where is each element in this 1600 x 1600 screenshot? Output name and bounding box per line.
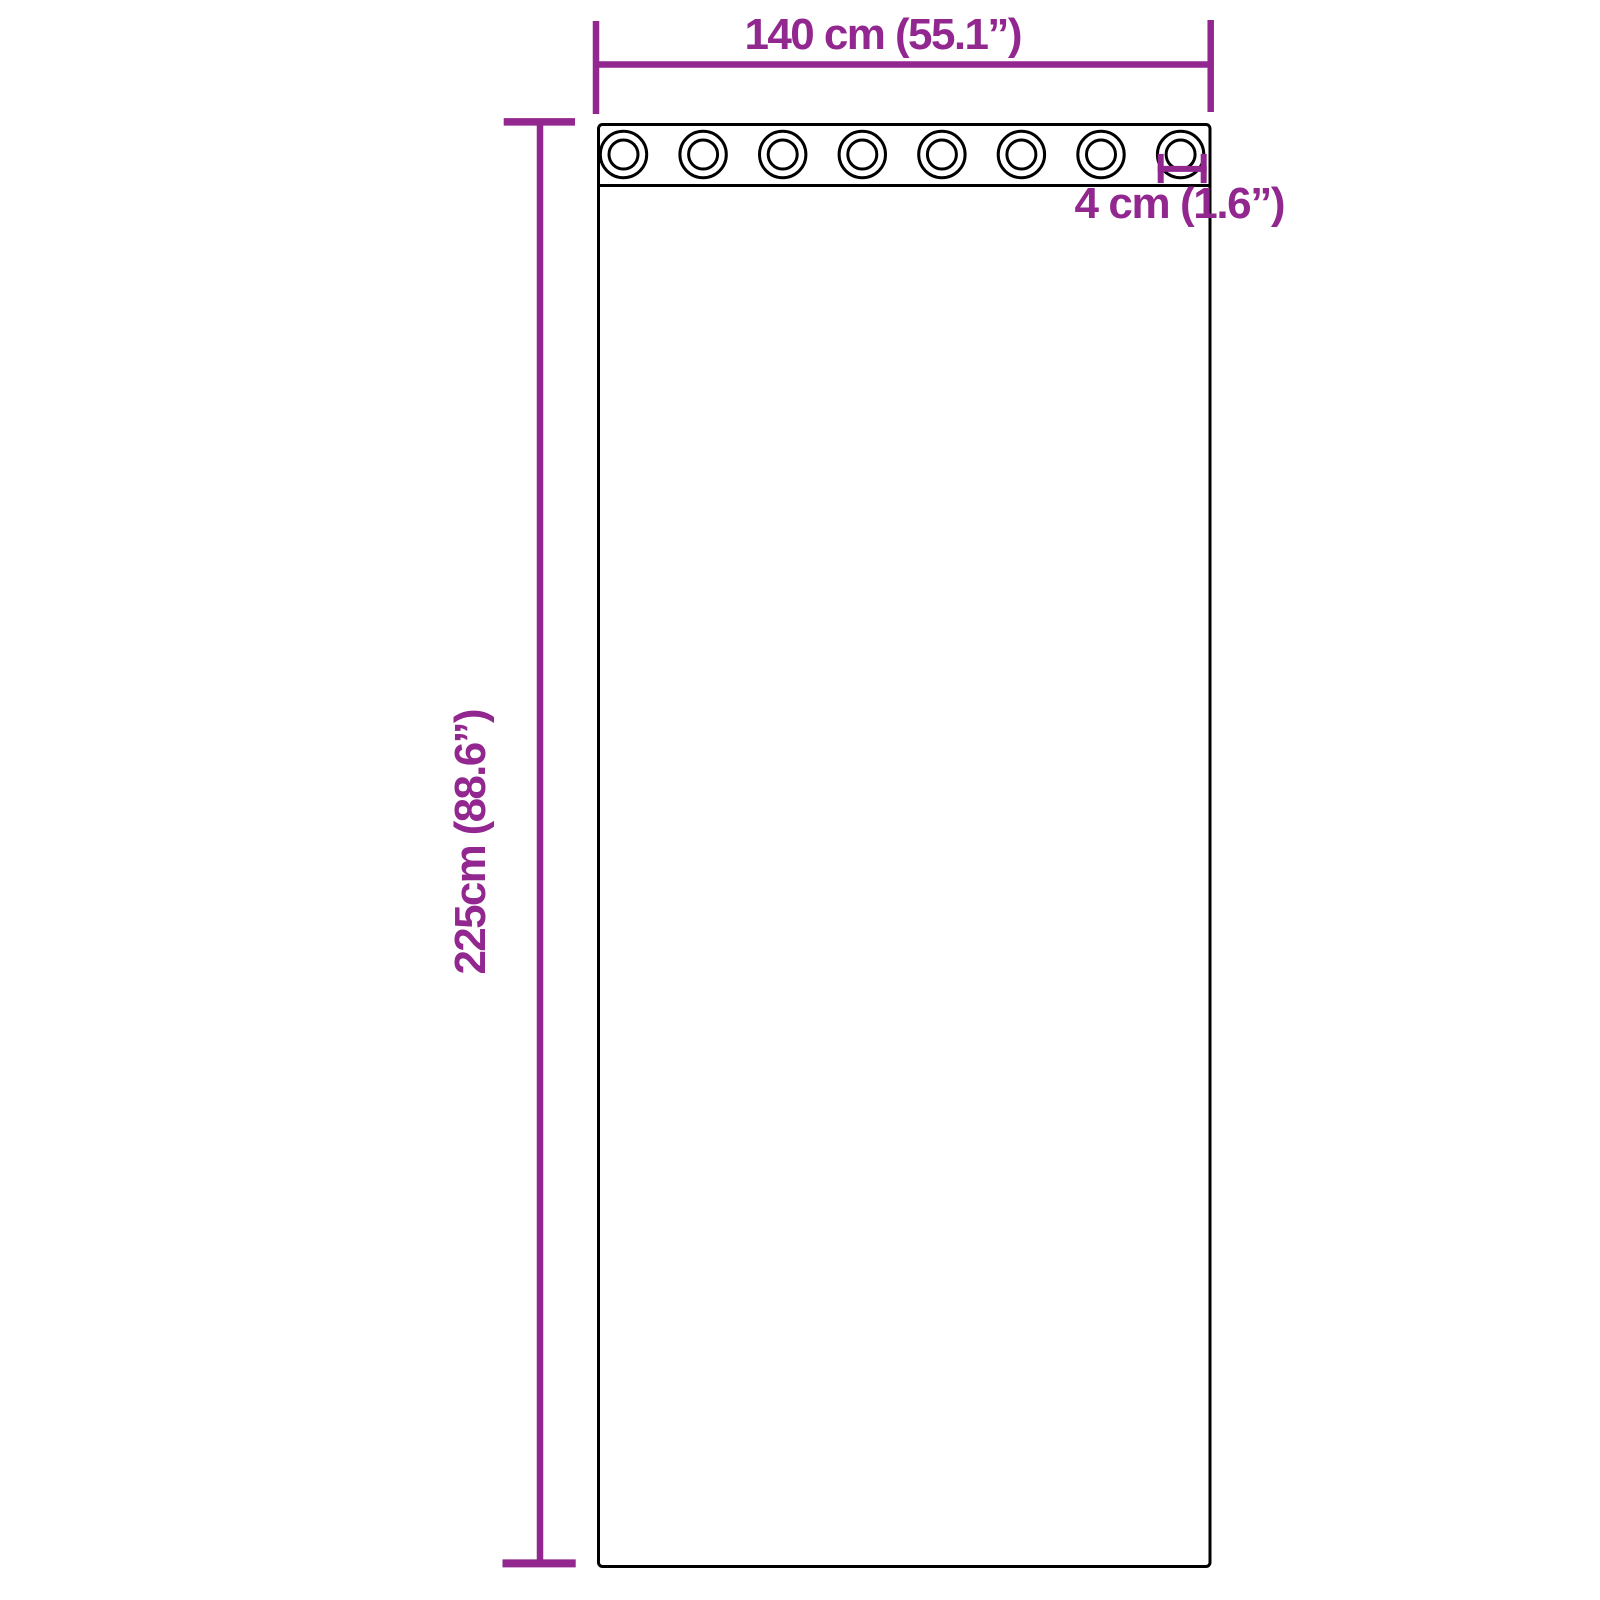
svg-text:225cm (88.6”): 225cm (88.6”) (446, 709, 495, 975)
svg-text:140 cm (55.1”): 140 cm (55.1”) (745, 10, 1023, 59)
svg-text:4 cm (1.6”): 4 cm (1.6”) (1075, 179, 1286, 228)
